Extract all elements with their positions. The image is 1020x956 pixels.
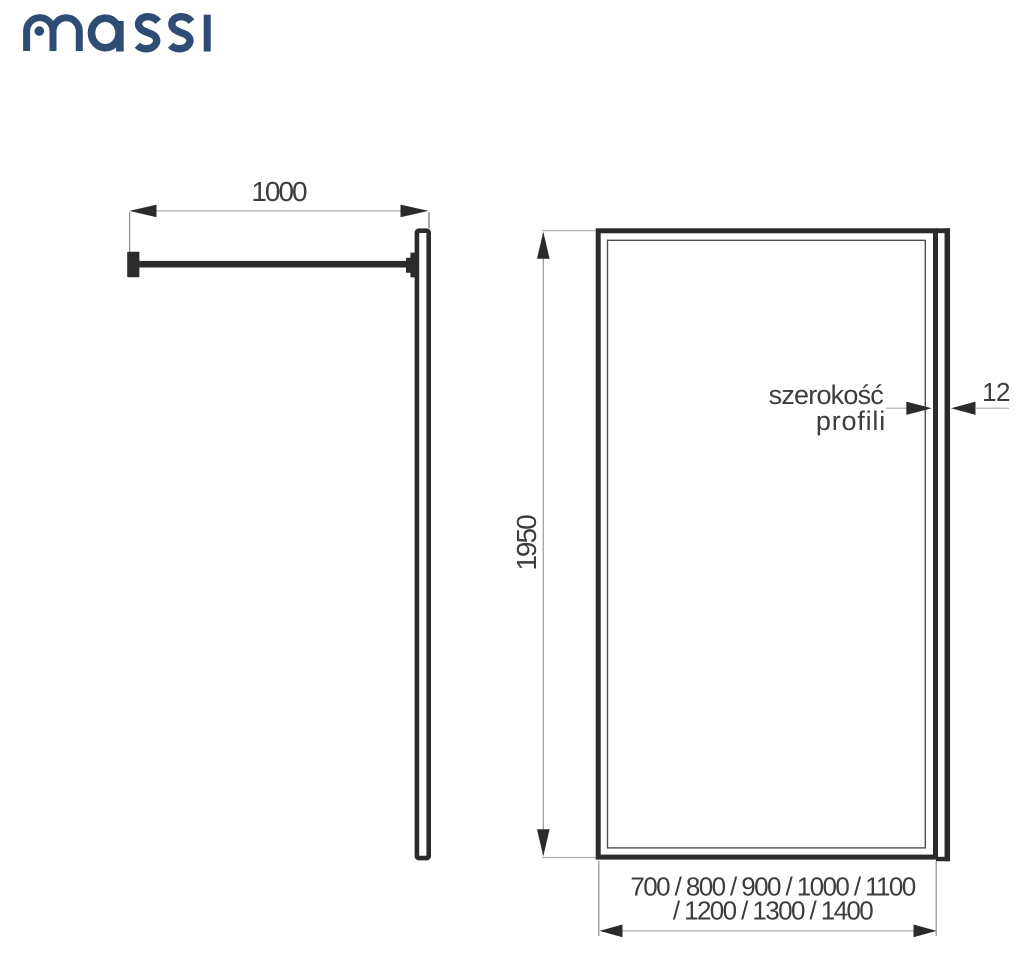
svg-text:12: 12: [982, 377, 1010, 407]
svg-text:1950: 1950: [511, 515, 542, 571]
svg-text:1000: 1000: [251, 176, 307, 207]
svg-text:/ 1200 / 1300 / 1400: / 1200 / 1300 / 1400: [673, 896, 873, 926]
svg-text:profili: profili: [816, 406, 886, 436]
